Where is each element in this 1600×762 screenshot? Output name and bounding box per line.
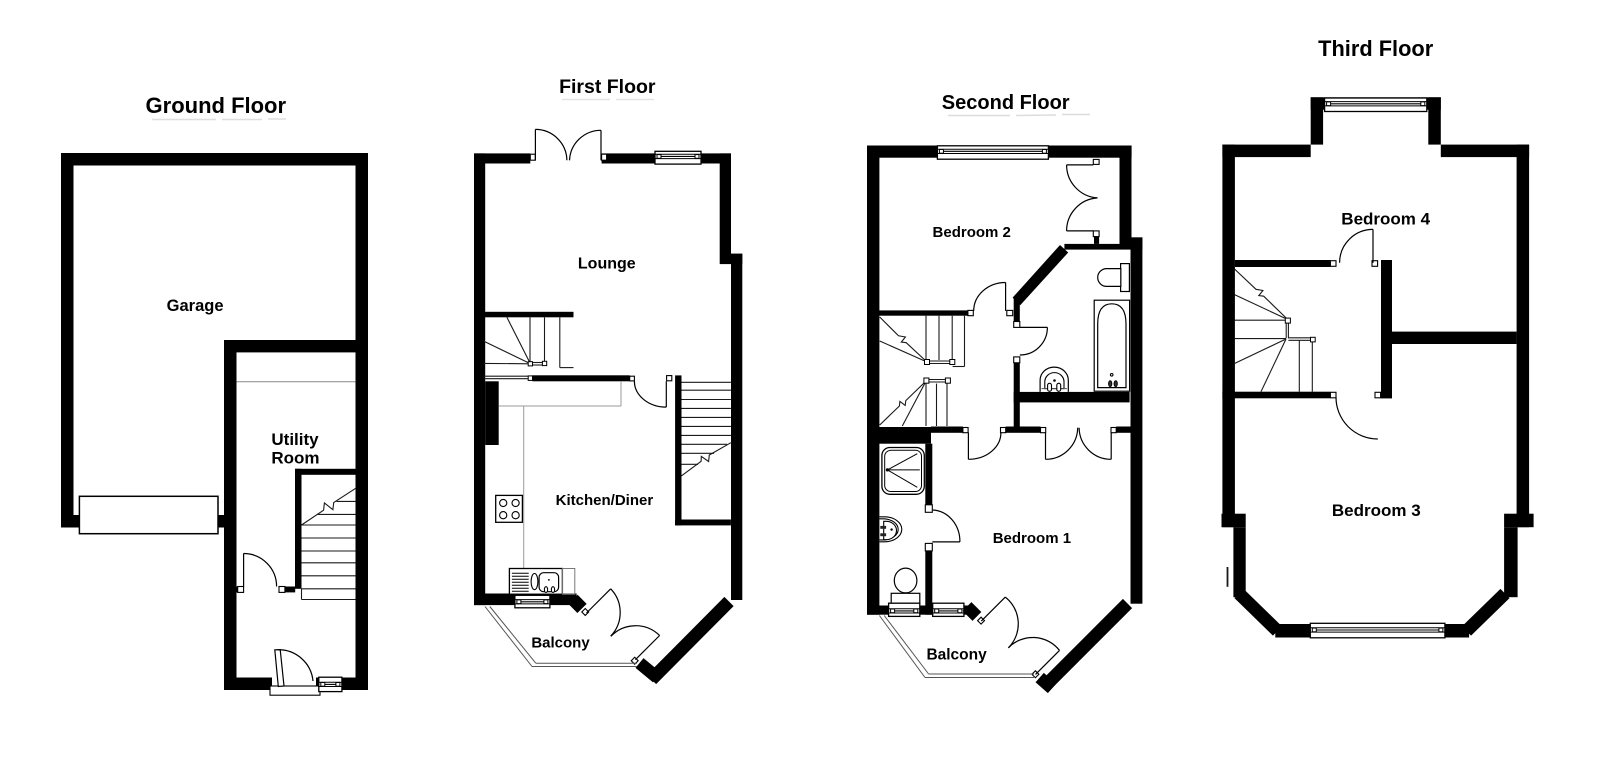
svg-text:First Floor: First Floor — [559, 76, 656, 98]
svg-text:Garage: Garage — [167, 297, 224, 315]
svg-text:Bedroom 4: Bedroom 4 — [1341, 209, 1430, 228]
svg-text:Room: Room — [271, 448, 319, 467]
svg-text:Bedroom 2: Bedroom 2 — [933, 224, 1011, 241]
svg-text:Kitchen/Diner: Kitchen/Diner — [556, 492, 654, 509]
svg-text:Utility: Utility — [271, 430, 319, 449]
svg-text:Lounge: Lounge — [578, 256, 636, 273]
svg-text:Bedroom 1: Bedroom 1 — [993, 530, 1071, 547]
svg-text:Balcony: Balcony — [531, 635, 590, 652]
svg-text:Ground Floor: Ground Floor — [146, 93, 287, 118]
svg-text:Third Floor: Third Floor — [1318, 36, 1434, 61]
svg-text:Bedroom 3: Bedroom 3 — [1332, 501, 1421, 520]
svg-text:Balcony: Balcony — [926, 647, 987, 664]
svg-text:Second Floor: Second Floor — [942, 92, 1070, 114]
